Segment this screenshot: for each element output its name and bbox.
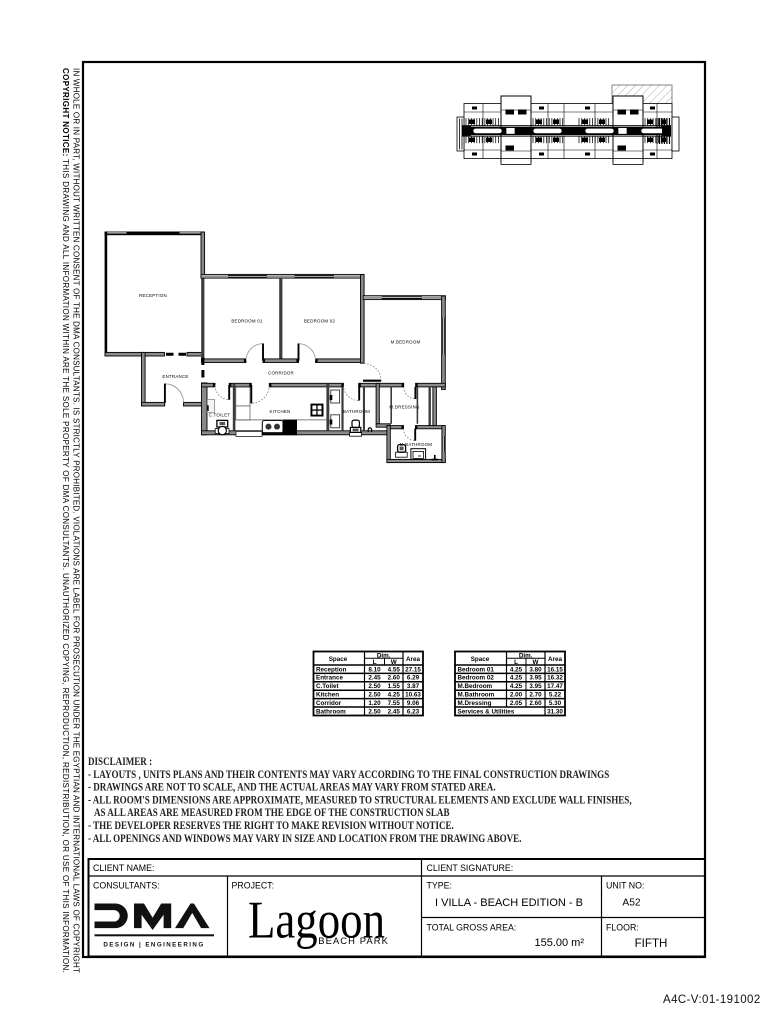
svg-text:3.80: 3.80 [529,666,542,673]
svg-text:7.55: 7.55 [388,700,401,707]
svg-text:Services & Utilities: Services & Utilities [458,708,515,715]
svg-text:3.95: 3.95 [529,683,542,690]
svg-text:2.45: 2.45 [388,708,401,715]
svg-text:COPYRIGHT NOTICE: THIS DRAWING: COPYRIGHT NOTICE: THIS DRAWING AND ALL I… [61,68,70,973]
svg-text:CORRIDOR: CORRIDOR [268,370,294,375]
svg-text:1.55: 1.55 [388,683,401,690]
svg-text:Dim.: Dim. [519,652,533,659]
svg-text:W: W [533,659,539,666]
svg-text:TYPE:: TYPE: [427,881,452,891]
svg-text:2.60: 2.60 [388,675,401,682]
svg-text:17.47: 17.47 [547,683,563,690]
svg-text:8.10: 8.10 [368,666,381,673]
svg-text:2.50: 2.50 [368,708,381,715]
svg-text:M.Dressing: M.Dressing [458,700,492,707]
svg-text:6.29: 6.29 [407,675,420,682]
svg-text:CLIENT NAME:: CLIENT NAME: [93,863,154,873]
svg-text:2.50: 2.50 [368,692,381,699]
svg-text:KITCHEN: KITCHEN [269,409,290,414]
svg-text:DESIGN | ENGINEERING: DESIGN | ENGINEERING [103,942,204,949]
svg-text:2.50: 2.50 [368,683,381,690]
svg-text:I VILLA - BEACH EDITION - B: I VILLA - BEACH EDITION - B [435,897,583,909]
svg-text:Reception: Reception [316,666,347,673]
svg-text:FLOOR:: FLOOR: [606,923,639,933]
svg-text:C.Toilet: C.Toilet [316,683,340,690]
svg-text:2.00: 2.00 [510,692,523,699]
svg-text:A4C-V:01-191002: A4C-V:01-191002 [663,994,761,1006]
svg-text:M.DRESSING: M.DRESSING [389,404,420,409]
svg-text:IN WHOLE OR IN PART, WITHOUT W: IN WHOLE OR IN PART, WITHOUT WRITTEN CON… [72,68,81,973]
svg-text:1.20: 1.20 [368,700,381,707]
svg-text:- LAYOUTS , UNITS PLANS AND TH: - LAYOUTS , UNITS PLANS AND THEIR CONTEN… [88,769,609,781]
svg-text:2.05: 2.05 [510,700,523,707]
svg-text:TOTAL GROSS AREA:: TOTAL GROSS AREA: [427,923,517,933]
svg-text:155.00 m²: 155.00 m² [534,937,584,949]
svg-text:6.23: 6.23 [407,708,420,715]
svg-text:PROJECT:: PROJECT: [232,881,275,891]
svg-text:CLIENT SIGNATURE:: CLIENT SIGNATURE: [427,863,514,873]
svg-text:ENTRANCE: ENTRANCE [162,374,188,379]
svg-text:4.25: 4.25 [510,675,523,682]
svg-text:16.32: 16.32 [547,675,563,682]
svg-text:FIFTH: FIFTH [635,937,668,950]
svg-text:W: W [391,659,397,666]
svg-text:Area: Area [548,656,562,663]
svg-text:C.TOILET: C.TOILET [209,413,231,418]
svg-text:- THE DEVELOPER RESERVES THE R: - THE DEVELOPER RESERVES THE RIGHT TO MA… [88,820,454,832]
svg-text:- ALL OPENINGS AND WINDOWS MAY: - ALL OPENINGS AND WINDOWS MAY VARY IN S… [88,833,522,845]
svg-text:Bedroom 01: Bedroom 01 [458,666,495,673]
svg-text:M.BEDROOM: M.BEDROOM [391,339,421,344]
svg-text:4.55: 4.55 [388,666,401,673]
svg-text:Space: Space [471,656,490,663]
svg-text:AS ALL AREAS ARE MEASURED FROM: AS ALL AREAS ARE MEASURED FROM THE EDGE … [94,807,450,819]
svg-text:31.30: 31.30 [547,708,563,715]
svg-text:- ALL ROOM'S DIMENSIONS ARE AP: - ALL ROOM'S DIMENSIONS ARE APPROXIMATE,… [88,795,632,807]
svg-text:BATHROOM: BATHROOM [343,409,370,414]
svg-text:Entrance: Entrance [316,675,343,682]
svg-text:M.Bathroom: M.Bathroom [458,692,495,699]
svg-text:5.22: 5.22 [549,692,562,699]
svg-text:9.06: 9.06 [407,700,420,707]
svg-text:Area: Area [406,656,420,663]
svg-text:16.15: 16.15 [547,666,563,673]
svg-text:2.45: 2.45 [368,675,381,682]
svg-text:BEACH PARK: BEACH PARK [318,935,389,946]
svg-text:2.60: 2.60 [529,700,542,707]
svg-text:L: L [373,659,377,666]
svg-text:BEDROOM 02: BEDROOM 02 [304,318,336,323]
svg-text:UNIT NO:: UNIT NO: [606,881,644,891]
svg-text:27.15: 27.15 [405,666,421,673]
svg-text:M.Bedroom: M.Bedroom [458,683,493,690]
svg-text:CONSULTANTS:: CONSULTANTS: [93,881,160,891]
svg-text:L: L [514,659,518,666]
svg-text:DISCLAIMER :: DISCLAIMER : [88,756,152,768]
svg-text:Kitchen: Kitchen [316,692,339,699]
svg-text:4.25: 4.25 [388,692,401,699]
svg-text:Bathroom: Bathroom [316,708,346,715]
svg-text:5.30: 5.30 [549,700,562,707]
svg-text:10.63: 10.63 [405,692,421,699]
svg-text:Dim.: Dim. [377,652,391,659]
svg-text:4.25: 4.25 [510,683,523,690]
svg-text:Space: Space [329,656,348,663]
svg-text:4.25: 4.25 [510,666,523,673]
svg-text:2.70: 2.70 [529,692,542,699]
svg-text:A52: A52 [622,898,640,909]
svg-text:3.87: 3.87 [407,683,420,690]
svg-text:RECEPTION: RECEPTION [139,293,167,298]
svg-text:BEDROOM 01: BEDROOM 01 [231,318,263,323]
svg-text:- DRAWINGS ARE NOT TO SCALE, A: - DRAWINGS ARE NOT TO SCALE, AND THE ACT… [88,782,496,794]
svg-text:Corridor: Corridor [316,700,342,707]
svg-text:M.BATHROOM: M.BATHROOM [400,442,433,447]
svg-text:Bedroom 02: Bedroom 02 [458,675,495,682]
svg-text:3.95: 3.95 [529,675,542,682]
